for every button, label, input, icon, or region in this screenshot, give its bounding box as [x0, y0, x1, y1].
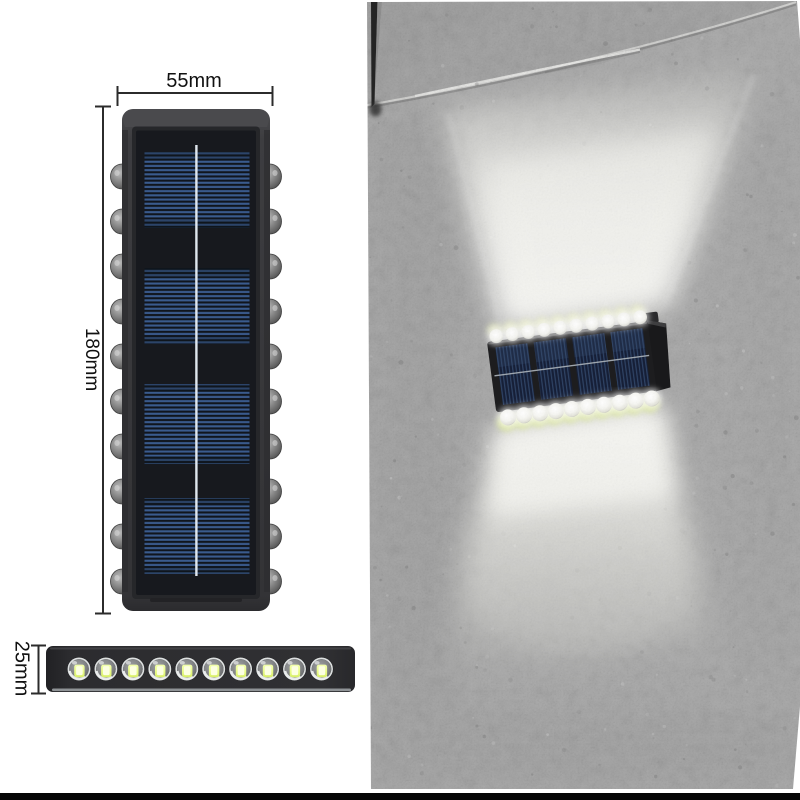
- svg-text:25mm: 25mm: [11, 641, 33, 697]
- svg-text:180mm: 180mm: [81, 328, 102, 391]
- svg-text:55mm: 55mm: [166, 70, 222, 92]
